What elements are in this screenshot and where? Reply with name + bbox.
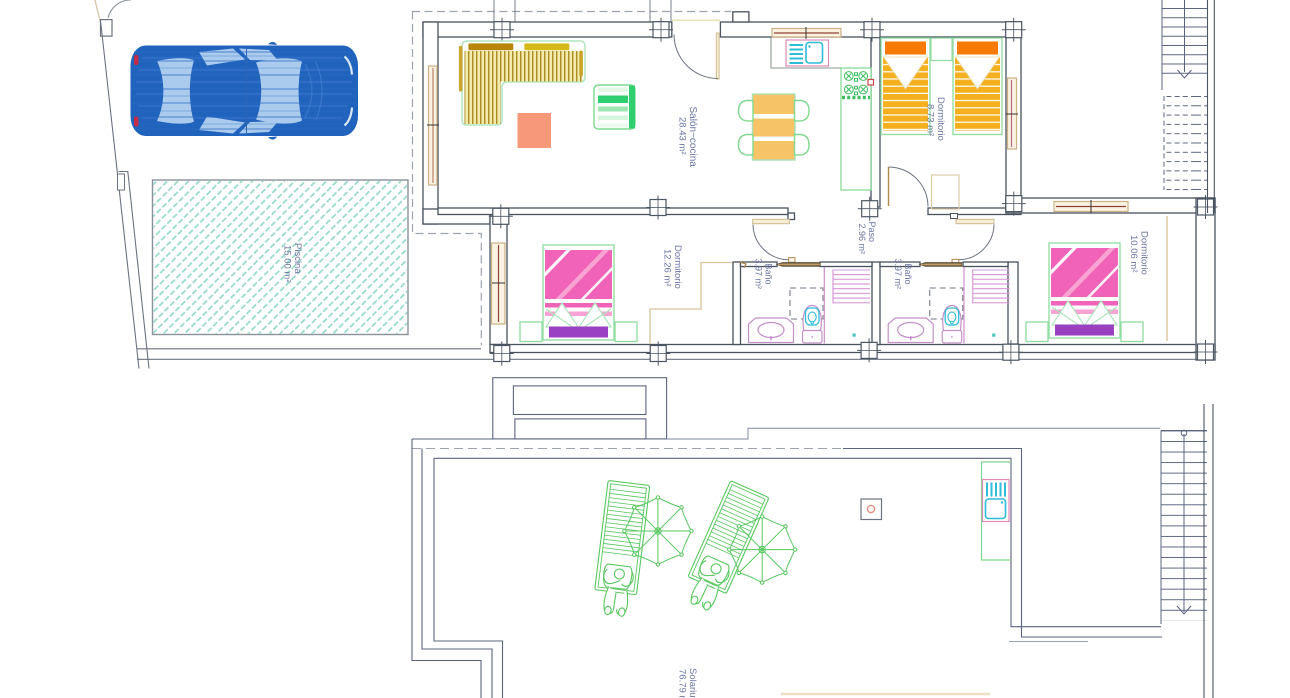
svg-text:Paso: Paso: [867, 222, 877, 243]
svg-text:Solarium: Solarium: [687, 668, 698, 698]
svg-text:15.00 m²: 15.00 m²: [282, 245, 293, 283]
svg-text:76.79 m²: 76.79 m²: [677, 669, 688, 698]
svg-text:Dormitorio: Dormitorio: [935, 97, 946, 141]
svg-text:Dormitorio: Dormitorio: [672, 245, 683, 289]
svg-text:Salón−cocina: Salón−cocina: [687, 107, 698, 168]
svg-text:2.96 m²: 2.96 m²: [857, 224, 867, 255]
svg-text:12.26 m²: 12.26 m²: [662, 249, 673, 287]
svg-text:Baño: Baño: [903, 264, 913, 285]
svg-text:28.43 m²: 28.43 m²: [677, 117, 688, 155]
svg-text:8.73 m²: 8.73 m²: [925, 104, 936, 136]
svg-text:Baño: Baño: [764, 264, 774, 285]
svg-text:Dormitorio: Dormitorio: [1139, 231, 1150, 275]
svg-text:10.06 m²: 10.06 m²: [1128, 235, 1139, 273]
svg-text:3.97 m²: 3.97 m²: [754, 259, 764, 290]
svg-text:3.97 m²: 3.97 m²: [893, 259, 903, 290]
svg-text:Piscina: Piscina: [292, 243, 303, 274]
